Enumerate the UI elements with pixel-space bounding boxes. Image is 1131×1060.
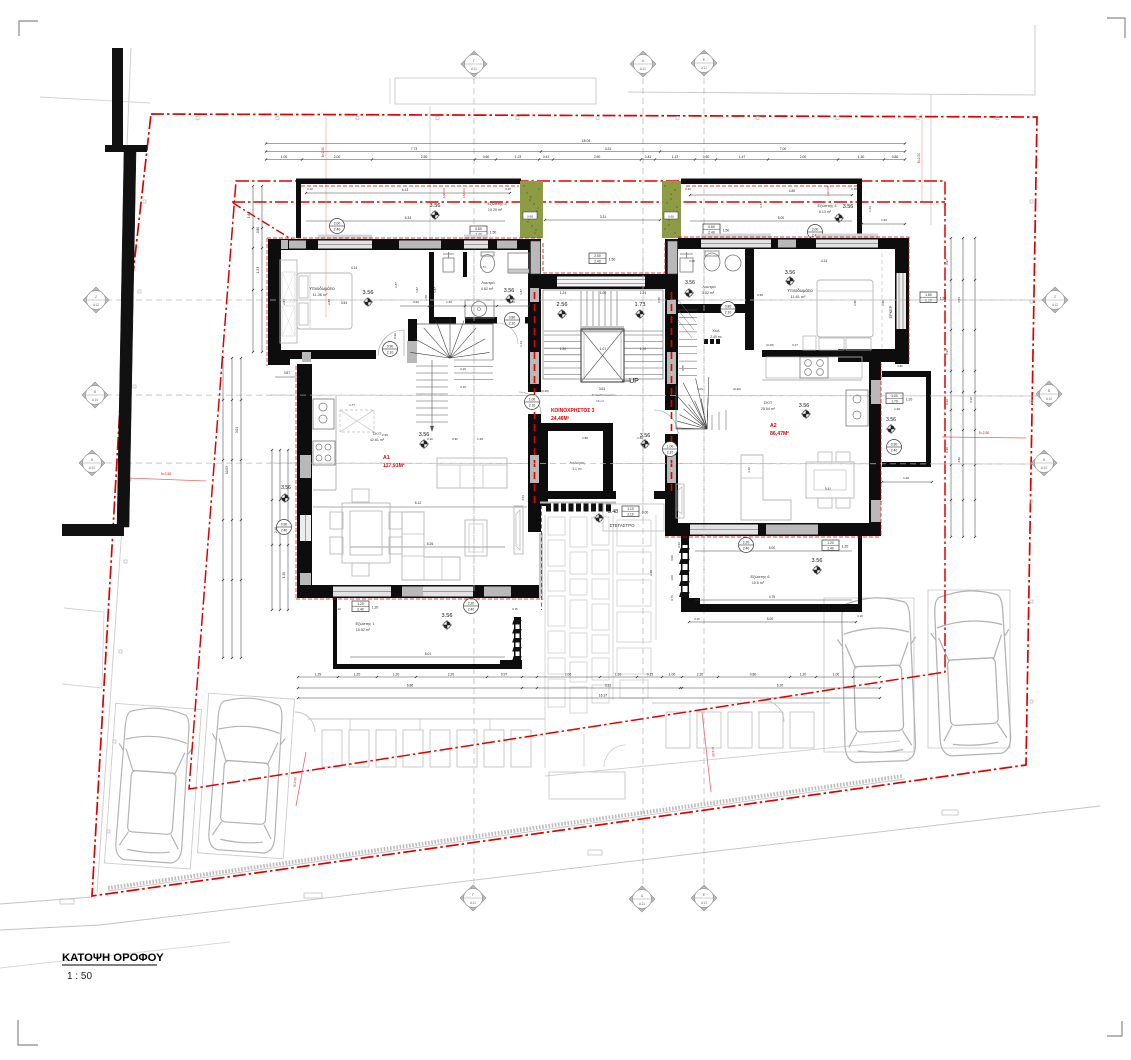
- svg-text:25.54 m²: 25.54 m²: [761, 407, 776, 411]
- svg-text:0.80: 0.80: [897, 364, 903, 368]
- svg-text:1.20: 1.20: [372, 606, 379, 610]
- svg-text:1Αδ=0.6: 1Αδ=0.6: [462, 188, 466, 198]
- svg-text:3.56: 3.56: [442, 613, 453, 619]
- svg-text:0.80: 0.80: [256, 227, 260, 233]
- svg-text:3.63: 3.63: [599, 387, 605, 391]
- svg-text:1.63: 1.63: [247, 212, 251, 218]
- svg-text:A10: A10: [1041, 466, 1047, 470]
- svg-text:1.73: 1.73: [519, 341, 523, 347]
- svg-text:6.33: 6.33: [405, 216, 412, 220]
- svg-text:1.50: 1.50: [490, 231, 497, 235]
- svg-text:2.71: 2.71: [480, 265, 486, 269]
- svg-text:0.60: 0.60: [757, 293, 763, 297]
- svg-text:3.16: 3.16: [460, 367, 466, 371]
- svg-text:A12: A12: [93, 303, 99, 307]
- svg-text:3.54: 3.54: [341, 301, 347, 305]
- svg-text:0.93: 0.93: [393, 333, 397, 339]
- svg-text:2.10: 2.10: [387, 351, 394, 355]
- svg-text:0.90: 0.90: [281, 522, 288, 526]
- svg-text:0.10: 0.10: [685, 187, 691, 191]
- svg-text:0.15: 0.15: [694, 617, 700, 621]
- svg-text:5.01: 5.01: [425, 652, 432, 656]
- svg-text:2.50: 2.50: [594, 254, 601, 258]
- svg-text:5.00: 5.00: [778, 216, 785, 220]
- svg-text:1.87: 1.87: [519, 289, 523, 295]
- svg-text:Δ: Δ: [641, 893, 644, 898]
- svg-text:0.97: 0.97: [501, 672, 508, 676]
- svg-text:1.24: 1.24: [560, 291, 566, 295]
- svg-text:3.56: 3.56: [430, 203, 441, 209]
- svg-text:5.00: 5.00: [767, 617, 774, 621]
- svg-text:1.26: 1.26: [477, 437, 483, 441]
- svg-text:E: E: [703, 892, 706, 897]
- svg-text:Λουτρό: Λουτρό: [481, 280, 495, 285]
- svg-text:Χωλ: Χωλ: [712, 329, 719, 333]
- svg-text:0.10: 0.10: [335, 607, 341, 611]
- svg-text:11.61 m²: 11.61 m²: [791, 295, 806, 299]
- svg-text:A11: A11: [471, 67, 477, 71]
- svg-text:86,47Μ²: 86,47Μ²: [770, 431, 789, 437]
- svg-text:1.30: 1.30: [282, 572, 286, 578]
- svg-text:δ=2.50: δ=2.50: [711, 747, 716, 757]
- svg-text:E: E: [703, 57, 706, 62]
- svg-text:1.00: 1.00: [669, 672, 676, 676]
- svg-text:3.56: 3.56: [799, 403, 810, 409]
- svg-text:2.00: 2.00: [334, 155, 341, 159]
- svg-text:(0.26): (0.26): [733, 387, 741, 391]
- svg-text:(0.26): (0.26): [766, 343, 774, 347]
- svg-text:2.80: 2.80: [853, 300, 857, 306]
- svg-text:3.56: 3.56: [363, 290, 374, 296]
- svg-text:0.80: 0.80: [725, 304, 732, 308]
- svg-text:3.31: 3.31: [600, 215, 607, 219]
- svg-text:A12: A12: [701, 66, 707, 70]
- svg-text:1.47: 1.47: [739, 155, 746, 159]
- svg-text:4.80: 4.80: [789, 189, 796, 193]
- svg-text:A2: A2: [770, 423, 777, 429]
- svg-text:1.30: 1.30: [858, 155, 865, 159]
- svg-text:Εξώστης 6: Εξώστης 6: [750, 574, 770, 579]
- svg-text:0.10: 0.10: [851, 187, 857, 191]
- svg-text:4.63: 4.63: [521, 495, 525, 501]
- svg-text:5.26: 5.26: [427, 542, 434, 546]
- svg-text:1.20: 1.20: [560, 347, 566, 351]
- svg-text:2.20: 2.20: [925, 298, 932, 302]
- svg-text:24,46Μ²: 24,46Μ²: [551, 416, 570, 422]
- svg-text:2.40: 2.40: [334, 228, 341, 232]
- svg-text:1Αδ=0.6: 1Αδ=0.6: [826, 186, 830, 196]
- svg-text:A10: A10: [89, 466, 95, 470]
- svg-text:6.13: 6.13: [402, 188, 409, 192]
- svg-text:0.00: 0.00: [642, 511, 649, 515]
- svg-text:1.00: 1.00: [833, 672, 840, 676]
- svg-text:1.30: 1.30: [894, 407, 900, 411]
- svg-text:10.5 m²: 10.5 m²: [752, 581, 765, 585]
- svg-text:10.09: 10.09: [225, 466, 229, 474]
- svg-text:3.31: 3.31: [605, 683, 612, 687]
- svg-text:1.00: 1.00: [670, 575, 674, 581]
- svg-text:2.40: 2.40: [594, 259, 601, 263]
- svg-text:δ=2.50: δ=2.50: [161, 472, 172, 476]
- svg-text:A: A: [1043, 457, 1046, 462]
- svg-text:0.75: 0.75: [681, 365, 685, 371]
- svg-text:ΕΡΚΕΡ: ΕΡΚΕΡ: [889, 305, 893, 318]
- svg-text:6.86: 6.86: [407, 683, 414, 687]
- svg-text:6.20: 6.20: [777, 683, 784, 687]
- svg-text:0.10: 0.10: [505, 187, 511, 191]
- svg-text:0.10: 0.10: [307, 187, 313, 191]
- svg-text:1.40: 1.40: [881, 218, 887, 222]
- svg-text:0.90: 0.90: [945, 447, 949, 453]
- svg-text:0.15: 0.15: [512, 607, 518, 611]
- svg-text:5.00: 5.00: [769, 546, 776, 550]
- svg-text:0.60: 0.60: [703, 155, 710, 159]
- svg-text:4.14: 4.14: [351, 266, 357, 270]
- svg-text:A12: A12: [1052, 303, 1058, 307]
- svg-text:1.29: 1.29: [315, 672, 322, 676]
- svg-text:3.48: 3.48: [608, 509, 618, 515]
- svg-text:2.40: 2.40: [357, 607, 364, 611]
- svg-text:1.50: 1.50: [609, 258, 616, 262]
- svg-text:4.82: 4.82: [957, 457, 961, 463]
- svg-text:ΣΚ/Τ: ΣΚ/Τ: [764, 400, 773, 405]
- svg-text:0.90: 0.90: [891, 442, 898, 446]
- svg-text:4.75: 4.75: [769, 595, 776, 599]
- svg-text:1.40: 1.40: [903, 476, 909, 480]
- svg-text:1 : 50: 1 : 50: [67, 971, 92, 982]
- svg-text:0.60: 0.60: [483, 155, 490, 159]
- svg-text:3.1 m²: 3.1 m²: [572, 467, 582, 471]
- svg-text:1.00: 1.00: [281, 155, 288, 159]
- svg-text:2.56: 2.56: [557, 302, 568, 308]
- svg-text:1.20: 1.20: [357, 602, 364, 606]
- svg-text:2.20: 2.20: [448, 672, 455, 676]
- svg-text:2.10: 2.10: [725, 311, 732, 315]
- svg-text:10.29 m²: 10.29 m²: [488, 208, 503, 212]
- svg-text:0.15: 0.15: [647, 672, 654, 676]
- svg-text:1.20: 1.20: [842, 545, 849, 549]
- svg-text:1.63: 1.63: [868, 206, 872, 212]
- svg-text:A12: A12: [701, 901, 707, 905]
- svg-text:1Αδ=0.6: 1Αδ=0.6: [442, 188, 446, 198]
- svg-text:5.41: 5.41: [825, 487, 831, 491]
- svg-text:2.90: 2.90: [421, 155, 428, 159]
- svg-text:0.80: 0.80: [509, 315, 516, 319]
- svg-text:δ=2.50: δ=2.50: [321, 147, 325, 158]
- svg-text:11.36 m²: 11.36 m²: [313, 293, 328, 297]
- svg-text:3.04: 3.04: [235, 427, 239, 433]
- svg-text:2.40: 2.40: [281, 529, 288, 533]
- svg-text:1.87: 1.87: [394, 282, 398, 288]
- svg-text:A11: A11: [640, 67, 646, 71]
- svg-text:2.00: 2.00: [812, 227, 819, 231]
- svg-text:1.00: 1.00: [600, 291, 606, 295]
- svg-text:Ανελκ/ρας: Ανελκ/ρας: [569, 461, 585, 465]
- svg-text:1.10: 1.10: [615, 672, 622, 676]
- svg-text:1.53: 1.53: [759, 202, 763, 208]
- svg-text:7.00: 7.00: [780, 147, 787, 151]
- svg-text:2.10: 2.10: [509, 322, 516, 326]
- svg-text:A: A: [91, 457, 94, 462]
- svg-text:A10: A10: [1046, 397, 1052, 401]
- svg-text:8.13 m²: 8.13 m²: [819, 210, 832, 214]
- svg-text:2.20: 2.20: [468, 601, 475, 605]
- svg-text:2.96: 2.96: [382, 433, 388, 437]
- svg-text:4.82 m²: 4.82 m²: [481, 287, 494, 291]
- svg-text:0.97: 0.97: [945, 259, 949, 265]
- svg-text:0.41: 0.41: [645, 155, 652, 159]
- svg-text:2.50: 2.50: [594, 155, 601, 159]
- svg-text:A11: A11: [470, 901, 476, 905]
- svg-text:0.40: 0.40: [677, 542, 681, 548]
- svg-text:3.56: 3.56: [504, 288, 515, 294]
- svg-text:3.16: 3.16: [460, 385, 466, 389]
- svg-text:2.10: 2.10: [667, 451, 674, 455]
- svg-text:1.07: 1.07: [600, 347, 606, 351]
- svg-text:1.50: 1.50: [637, 436, 643, 440]
- svg-text:B: B: [1048, 388, 1051, 393]
- svg-text:3.31: 3.31: [605, 147, 612, 151]
- svg-text:2.01: 2.01: [697, 387, 703, 391]
- svg-text:0.41: 0.41: [543, 155, 550, 159]
- svg-text:1.77: 1.77: [349, 403, 355, 407]
- svg-text:ΣΤΕΓΑΣΤΡΟ: ΣΤΕΓΑΣΤΡΟ: [609, 523, 635, 528]
- svg-text:0.60: 0.60: [475, 227, 482, 231]
- svg-text:2.40: 2.40: [827, 546, 834, 550]
- svg-text:10.52 m²: 10.52 m²: [356, 628, 371, 632]
- svg-text:2.00: 2.00: [334, 221, 341, 225]
- svg-text:18.04: 18.04: [582, 139, 591, 143]
- svg-text:0.80: 0.80: [750, 672, 757, 676]
- svg-text:ΣκάλαΠλατύσκαλο: ΣκάλαΠλατύσκαλο: [592, 393, 617, 397]
- svg-text:2.40: 2.40: [743, 547, 750, 551]
- svg-text:16.37: 16.37: [599, 693, 608, 697]
- svg-text:1.70: 1.70: [891, 399, 898, 403]
- svg-text:8.36: 8.36: [969, 397, 973, 403]
- svg-text:ΣΚ/Τ: ΣΚ/Τ: [373, 431, 382, 436]
- svg-text:1.60: 1.60: [925, 293, 932, 297]
- svg-text:0.97: 0.97: [945, 349, 949, 355]
- svg-text:3.56: 3.56: [785, 270, 796, 276]
- svg-text:0.12: 0.12: [745, 255, 751, 259]
- svg-text:0.90: 0.90: [452, 437, 458, 441]
- svg-text:2.80: 2.80: [881, 300, 885, 306]
- svg-text:0.80: 0.80: [509, 300, 515, 304]
- svg-text:B: B: [94, 389, 97, 394]
- svg-text:1.20: 1.20: [800, 672, 807, 676]
- svg-text:UP: UP: [629, 378, 639, 385]
- svg-text:3.56: 3.56: [886, 417, 896, 423]
- svg-text:1.50: 1.50: [723, 229, 730, 233]
- svg-text:Εξώστης 1: Εξώστης 1: [355, 621, 375, 626]
- svg-text:2.00: 2.00: [800, 155, 807, 159]
- svg-text:(0.26): (0.26): [541, 389, 549, 393]
- svg-text:7.73: 7.73: [411, 147, 418, 151]
- svg-text:1.53: 1.53: [256, 267, 260, 273]
- svg-text:Εξώστης 4: Εξώστης 4: [817, 203, 837, 208]
- svg-text:1.20: 1.20: [827, 541, 834, 545]
- svg-text:1.87: 1.87: [415, 287, 419, 293]
- svg-text:0.10: 0.10: [857, 614, 863, 618]
- svg-text:0.60: 0.60: [668, 215, 674, 219]
- svg-text:1.00: 1.00: [529, 397, 536, 401]
- svg-text:2.06: 2.06: [565, 672, 572, 676]
- svg-text:2.10: 2.10: [529, 404, 536, 408]
- svg-text:1.10: 1.10: [627, 507, 634, 511]
- svg-text:3.56: 3.56: [685, 280, 695, 286]
- svg-text:3.17: 3.17: [792, 343, 798, 347]
- svg-text:3.56: 3.56: [281, 485, 291, 491]
- svg-text:0.60: 0.60: [708, 225, 715, 229]
- svg-text:δ=2.50: δ=2.50: [917, 153, 921, 164]
- svg-text:1.20: 1.20: [906, 398, 913, 402]
- svg-text:1.20: 1.20: [354, 672, 361, 676]
- svg-text:4.10: 4.10: [747, 467, 751, 473]
- svg-text:1.24: 1.24: [640, 291, 646, 295]
- svg-text:1.40: 1.40: [446, 300, 452, 304]
- svg-text:16 m²: 16 m²: [596, 399, 604, 403]
- svg-text:0.60: 0.60: [527, 215, 533, 219]
- svg-text:Υπνοδωμάτιο: Υπνοδωμάτιο: [309, 286, 335, 291]
- svg-text:A1: A1: [383, 455, 390, 461]
- svg-text:A11: A11: [639, 902, 645, 906]
- svg-text:1.13: 1.13: [672, 155, 679, 159]
- svg-text:0.60: 0.60: [670, 555, 674, 561]
- svg-text:0.60: 0.60: [413, 300, 419, 304]
- svg-text:1.00: 1.00: [891, 394, 898, 398]
- svg-text:δ=2.50: δ=2.50: [293, 777, 298, 787]
- svg-text:Υπνοδωμάτιο: Υπνοδωμάτιο: [787, 288, 813, 293]
- svg-text:0.87: 0.87: [284, 371, 290, 375]
- svg-text:4.14: 4.14: [821, 259, 827, 263]
- svg-text:1.87: 1.87: [433, 287, 437, 293]
- svg-text:3.17: 3.17: [833, 351, 839, 355]
- svg-text:117,91Μ²: 117,91Μ²: [383, 463, 405, 469]
- svg-text:42.61 m²: 42.61 m²: [370, 438, 385, 442]
- svg-text:δ=2.50: δ=2.50: [979, 431, 990, 435]
- svg-text:2.00: 2.00: [689, 259, 695, 263]
- svg-text:ΚΟΙΝΟΧΡΗΣΤΟΣ 3: ΚΟΙΝΟΧΡΗΣΤΟΣ 3: [551, 408, 595, 414]
- svg-text:1.00: 1.00: [667, 444, 674, 448]
- svg-text:3.56: 3.56: [812, 558, 823, 564]
- svg-text:0.90: 0.90: [387, 344, 394, 348]
- svg-text:0.62: 0.62: [945, 399, 949, 405]
- svg-text:Δ: Δ: [642, 58, 645, 63]
- svg-text:3.56: 3.56: [419, 432, 430, 438]
- svg-text:2.20: 2.20: [743, 540, 750, 544]
- svg-text:1.73: 1.73: [635, 302, 646, 308]
- svg-text:3.02 m²: 3.02 m²: [702, 291, 715, 295]
- svg-text:1.80: 1.80: [582, 436, 588, 440]
- svg-text:0.80: 0.80: [892, 155, 899, 159]
- svg-text:2.49 m²: 2.49 m²: [710, 335, 722, 339]
- svg-text:2.10: 2.10: [649, 570, 653, 576]
- svg-text:A10: A10: [92, 398, 98, 402]
- svg-text:Λουτρό: Λουτρό: [702, 284, 716, 289]
- svg-text:2.10: 2.10: [627, 512, 634, 516]
- svg-text:Εξώστης 3: Εξώστης 3: [487, 201, 507, 206]
- svg-text:ΚΑΤΟΨΗ ΟΡΟΦΟΥ: ΚΑΤΟΨΗ ΟΡΟΦΟΥ: [62, 952, 164, 964]
- svg-text:0.70: 0.70: [670, 595, 674, 601]
- svg-text:2.40: 2.40: [891, 449, 898, 453]
- svg-text:2.40: 2.40: [468, 608, 475, 612]
- svg-text:1.23: 1.23: [515, 155, 522, 159]
- svg-text:2.20: 2.20: [697, 672, 704, 676]
- svg-text:3.56: 3.56: [843, 204, 854, 210]
- svg-text:6.12: 6.12: [415, 501, 421, 505]
- svg-text:1.20: 1.20: [393, 672, 400, 676]
